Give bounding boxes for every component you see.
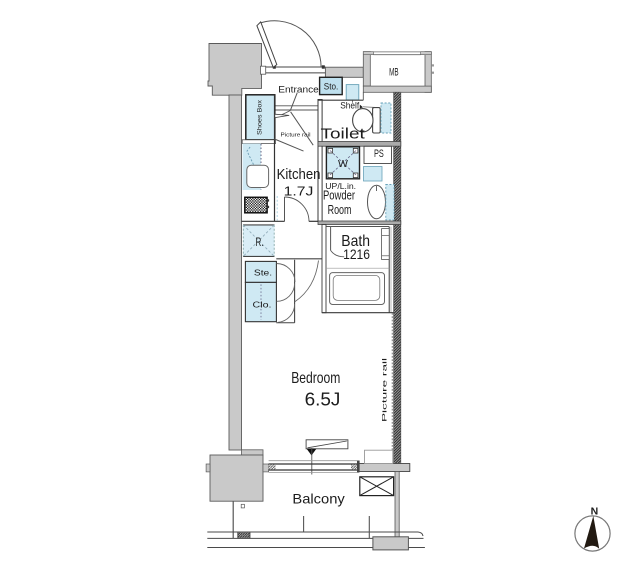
svg-text:Shoes Box: Shoes Box xyxy=(257,99,264,135)
svg-text:Ste.: Ste. xyxy=(254,268,272,277)
svg-text:N: N xyxy=(591,506,599,518)
svg-text:Room: Room xyxy=(328,202,352,217)
svg-text:1.7J: 1.7J xyxy=(284,184,314,199)
svg-text:Balcony: Balcony xyxy=(292,491,344,507)
svg-text:Toilet: Toilet xyxy=(321,125,366,142)
svg-text:Clo.: Clo. xyxy=(253,301,272,310)
svg-text:Kitchen: Kitchen xyxy=(277,167,321,183)
svg-text:Entrance: Entrance xyxy=(278,84,319,94)
svg-text:MB: MB xyxy=(389,66,399,78)
svg-text:Picture rail: Picture rail xyxy=(382,358,388,422)
svg-text:1216: 1216 xyxy=(343,247,370,262)
svg-text:Shelf: Shelf xyxy=(340,100,359,110)
svg-text:Picture rail: Picture rail xyxy=(281,133,311,139)
svg-text:R.: R. xyxy=(256,237,264,249)
svg-text:W: W xyxy=(338,158,348,170)
svg-text:PS: PS xyxy=(374,148,384,160)
svg-text:6.5J: 6.5J xyxy=(305,388,341,409)
svg-text:Bedroom: Bedroom xyxy=(291,370,340,387)
svg-text:Sto.: Sto. xyxy=(324,81,339,91)
svg-text:Powder: Powder xyxy=(323,187,356,202)
